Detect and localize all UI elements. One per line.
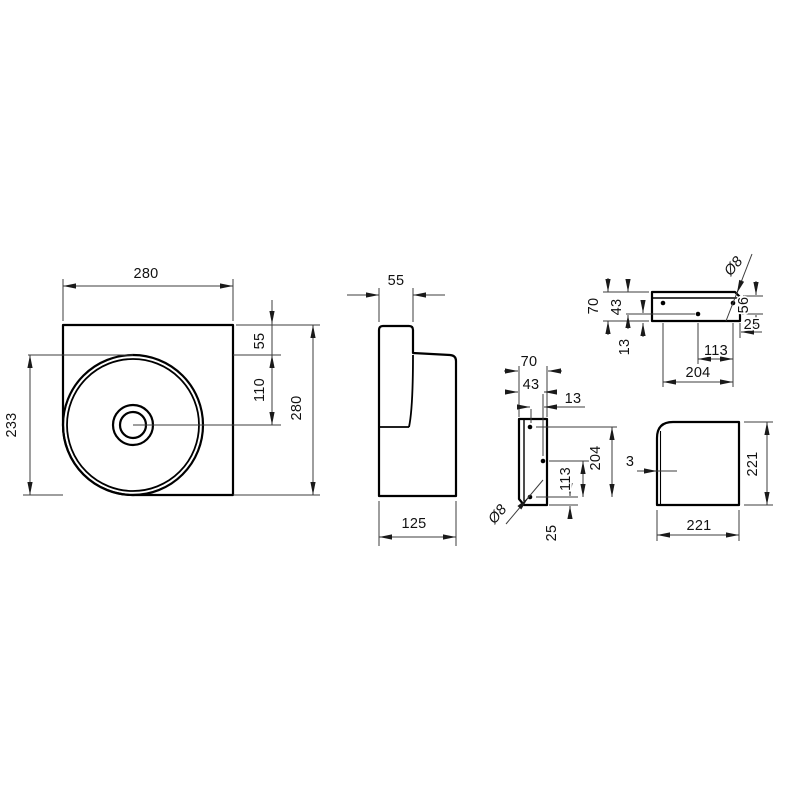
dim-bracketf-height-label: 70 — [586, 298, 602, 315]
dim-brackets-113-label: 113 — [558, 467, 574, 491]
dim-brackets-col43-label: 43 — [523, 377, 540, 393]
dim-cover-width-label: 221 — [686, 518, 711, 534]
dim-bracketf-204-label: 204 — [685, 365, 710, 381]
view-bracket-side: 70 43 13 204 113 25 Ø8 — [485, 354, 617, 541]
hole-diameter-label: Ø8 — [721, 254, 747, 280]
dim-drain-offset-label: 110 — [252, 378, 268, 402]
view-basin-front: 280 280 233 55 110 — [4, 266, 320, 495]
side-profile-inner-lines — [379, 355, 413, 427]
dim-cover-thickness-label: 3 — [626, 454, 634, 470]
dim-bracketf-25-label: 25 — [744, 317, 761, 333]
dim-brackets-25-label: 25 — [544, 525, 560, 542]
dim-cover-height-label: 221 — [745, 451, 761, 476]
mount-hole — [661, 301, 666, 306]
hole-dia-leader-arrow — [737, 280, 742, 293]
side-profile-outline — [379, 326, 456, 496]
mount-hole — [541, 459, 546, 464]
dim-bracketf-56-label: 56 — [736, 297, 752, 314]
dim-bracketf-113-label: 113 — [704, 343, 728, 359]
dim-brackets-width-label: 70 — [521, 354, 538, 370]
mount-hole — [528, 425, 533, 430]
technical-drawing-sheet: 280 280 233 55 110 55 125 7 — [0, 0, 800, 800]
basin-outline — [63, 325, 233, 495]
view-bracket-front: 70 43 13 56 25 113 204 Ø8 — [586, 254, 763, 387]
mount-hole — [696, 312, 701, 317]
view-cover: 3 221 221 — [626, 422, 773, 541]
dim-basin-height-label: 280 — [289, 395, 305, 420]
dim-side-top-depth-label: 55 — [388, 273, 405, 289]
cover-outline — [657, 422, 739, 505]
drawing-svg: 280 280 233 55 110 55 125 7 — [0, 0, 800, 800]
dim-bracketf-row13-label: 13 — [617, 339, 633, 356]
extension-lines — [23, 279, 320, 495]
dim-brackets-col13-label: 13 — [565, 391, 582, 407]
view-basin-side: 55 125 — [347, 273, 456, 546]
dim-brackets-204-label: 204 — [588, 445, 604, 470]
dim-basin-width-label: 280 — [133, 266, 158, 282]
dim-bracketf-row43-label: 43 — [609, 299, 625, 316]
dim-basin-left-label: 233 — [4, 412, 20, 437]
dim-side-base-depth-label: 125 — [401, 516, 426, 532]
dim-rim-offset-label: 55 — [252, 333, 268, 350]
bracket-front-outline — [652, 292, 740, 321]
